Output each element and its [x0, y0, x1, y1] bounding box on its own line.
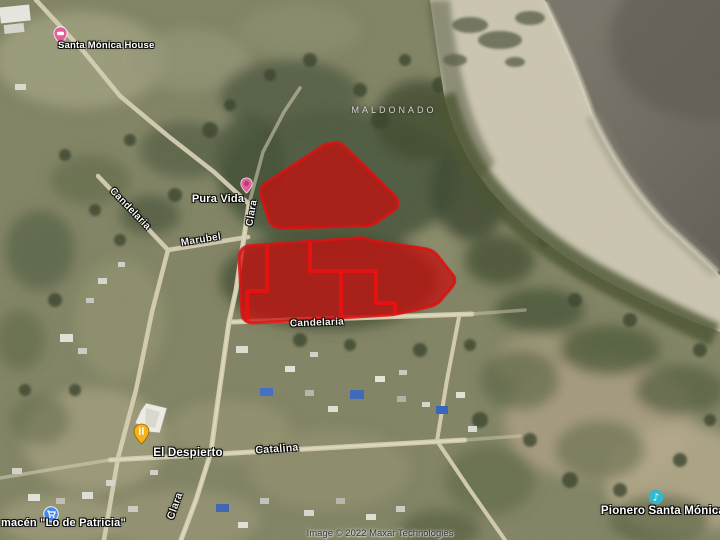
- region-label: MALDONADO: [351, 105, 436, 115]
- imagery-attribution: Image © 2022 Maxar Technologies: [307, 528, 454, 539]
- poi-label-el-despierto[interactable]: El Despierto: [153, 447, 223, 459]
- highlight-parcel-north[interactable]: [261, 142, 398, 228]
- music-icon[interactable]: ♪: [648, 489, 664, 505]
- poi-label-santa-monica-house[interactable]: Santa Mónica House: [58, 40, 155, 51]
- street-label-candelaria: Candelaria: [290, 317, 344, 330]
- poi-label-pura-vida[interactable]: Pura Vida: [192, 193, 244, 205]
- highlight-parcel-south[interactable]: [239, 238, 455, 323]
- parcel-highlight-overlay: [0, 0, 720, 540]
- place-pin-icon[interactable]: [240, 177, 253, 194]
- poi-label-pionero-santa-monica[interactable]: Pionero Santa Mónica: [601, 505, 720, 517]
- poi-label-lo-de-patricia[interactable]: macén "Lo de Patricia": [1, 517, 126, 529]
- satellite-map[interactable]: ♪ MALDONADO Santa Mónica House Pura Vida…: [0, 0, 720, 540]
- restaurant-pin-icon[interactable]: [133, 423, 150, 445]
- svg-text:♪: ♪: [653, 493, 659, 504]
